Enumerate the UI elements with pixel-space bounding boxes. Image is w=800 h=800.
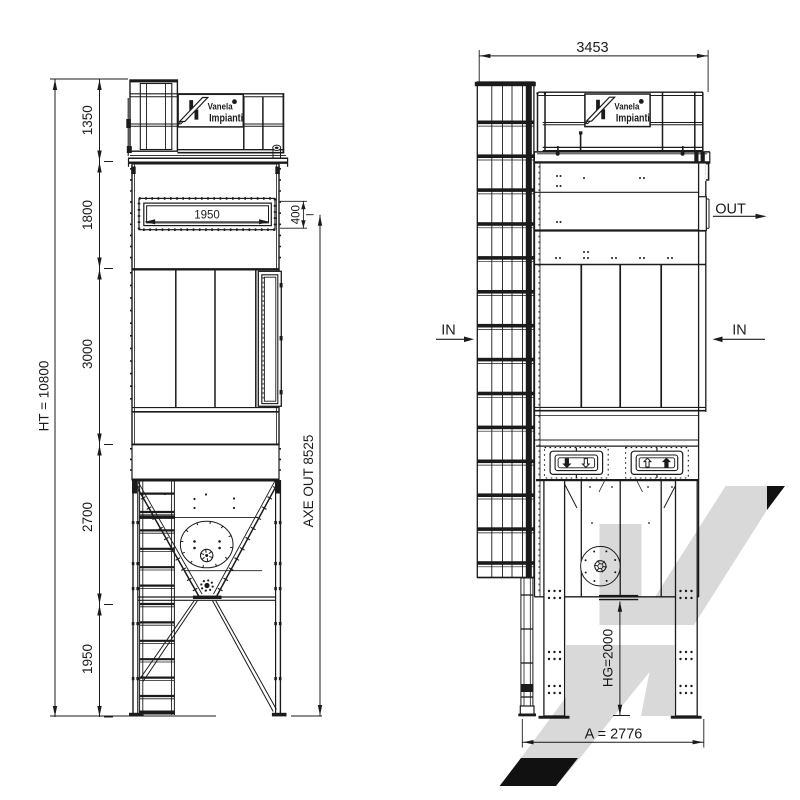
svg-text:AXE OUT 8525: AXE OUT 8525 <box>301 435 316 528</box>
svg-text:2700: 2700 <box>80 502 95 532</box>
svg-text:1800: 1800 <box>80 200 95 230</box>
svg-text:IN: IN <box>732 323 747 339</box>
svg-text:Impianti: Impianti <box>616 112 650 124</box>
svg-text:Vanela: Vanela <box>208 102 234 113</box>
svg-text:3000: 3000 <box>80 339 95 369</box>
svg-text:1950: 1950 <box>194 209 220 221</box>
svg-text:HT = 10800: HT = 10800 <box>37 361 52 432</box>
svg-text:3453: 3453 <box>576 40 608 56</box>
svg-text:IN: IN <box>441 323 456 339</box>
svg-text:Impianti: Impianti <box>209 113 243 125</box>
svg-text:1350: 1350 <box>80 105 95 135</box>
svg-text:400: 400 <box>290 205 302 224</box>
svg-text:Vanela: Vanela <box>614 101 640 112</box>
svg-text:1950: 1950 <box>80 644 95 674</box>
svg-text:OUT: OUT <box>715 202 746 218</box>
